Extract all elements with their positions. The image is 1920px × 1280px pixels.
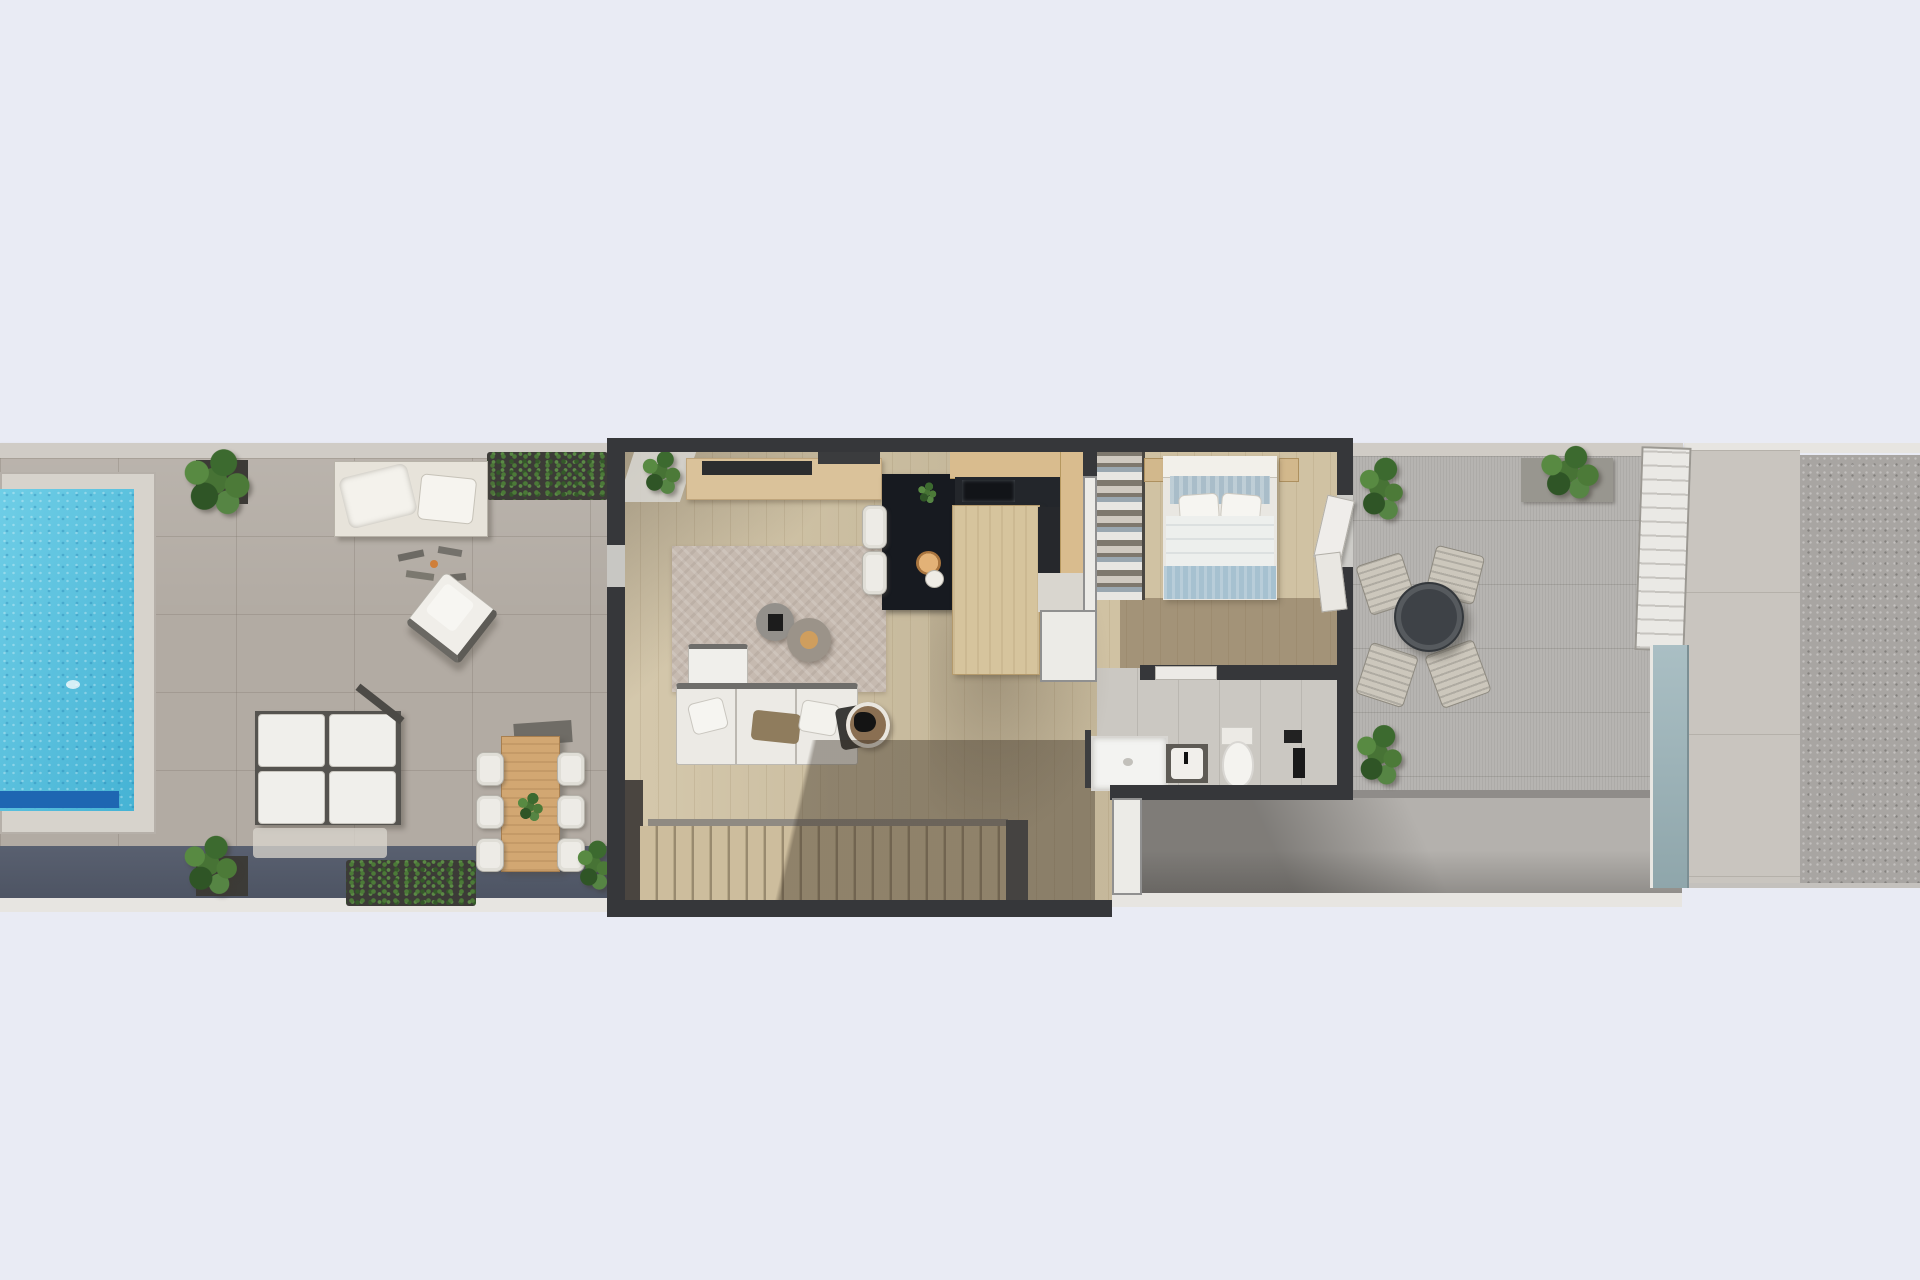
lounge-lower-pad — [253, 828, 387, 858]
potted-plant-top — [168, 446, 264, 522]
left-terrace-outer-trim — [0, 898, 625, 912]
gravel-band — [1800, 455, 1920, 883]
right-terrace-plant-topleft — [1352, 452, 1410, 530]
daybed-cushion — [417, 473, 478, 525]
partition-kitchen-bedroom — [1083, 476, 1097, 612]
glass-screen-pane — [1650, 645, 1689, 888]
pool-light — [66, 680, 80, 689]
rear-white-pillar — [1112, 798, 1142, 895]
pouf-tray-tan — [800, 631, 818, 649]
armchair-seat-cushion — [425, 582, 476, 633]
dining-chair — [557, 795, 585, 829]
potted-plant-bottom-left — [172, 832, 248, 902]
pool-bench-step — [0, 791, 119, 808]
dining-chair — [557, 752, 585, 786]
round-side-table — [846, 702, 890, 748]
small-bowl — [925, 570, 944, 588]
lounge-cushion — [258, 714, 325, 767]
lounge-cushion — [258, 771, 325, 824]
right-terrace-plant-bottom — [1348, 720, 1410, 794]
pouf-tray-dark — [768, 614, 783, 631]
bar-stool — [862, 551, 887, 595]
shower-drain — [1123, 758, 1133, 766]
bed-duvet — [1166, 516, 1274, 568]
lounge-cushion — [329, 771, 396, 824]
cooktop-appliance — [962, 480, 1015, 502]
table-centerpiece-plant — [512, 791, 548, 825]
partition-kitchen-bedroom-top — [1083, 438, 1097, 478]
kitchen-tall-unit — [1060, 452, 1084, 573]
media-slab — [818, 452, 880, 464]
hedge-planter-top — [487, 452, 608, 500]
tv-panel — [702, 461, 812, 475]
bath-accessory — [1284, 730, 1302, 743]
accessory-dot-orange — [430, 560, 438, 568]
left-wall-window — [607, 545, 625, 587]
towel-rail — [1293, 748, 1305, 778]
lounge-cushion — [329, 714, 396, 767]
dining-chair — [476, 838, 504, 872]
pouf-with-tray — [787, 618, 831, 662]
hall-bathroom-wall — [1040, 610, 1097, 682]
nightstand — [1279, 458, 1299, 482]
sofa-pillow — [798, 699, 841, 737]
nightstand — [1144, 458, 1164, 482]
house-wall-bottom-left — [607, 900, 1112, 917]
right-strip-bottom-edge — [1684, 883, 1920, 888]
double-bed — [1163, 456, 1277, 600]
round-bistro-table — [1394, 582, 1464, 652]
house-wall-right — [1337, 438, 1353, 800]
bathroom-door-leaf — [1155, 666, 1217, 680]
right-terrace-step-edge — [1353, 790, 1683, 798]
appliance-niche — [1038, 507, 1060, 573]
bar-stool — [862, 505, 887, 549]
vanity-counter — [1166, 744, 1208, 783]
accessory-bar — [398, 549, 425, 561]
bed-headboard — [1163, 456, 1277, 478]
dining-chair — [476, 795, 504, 829]
lounge-accessories — [398, 548, 470, 586]
open-wardrobe — [1097, 450, 1145, 600]
vanity-tap — [1184, 752, 1188, 764]
modular-lounge-set — [255, 711, 401, 825]
daybed — [334, 461, 488, 537]
indoor-plant — [634, 448, 688, 500]
right-terrace-top-wall — [1353, 443, 1683, 456]
table-decor-dark — [854, 712, 876, 732]
swimming-pool — [0, 489, 134, 811]
house-wall-bottom-right — [1110, 785, 1353, 800]
kitchen-peninsula — [952, 505, 1040, 675]
stair-stub-wall — [1006, 820, 1028, 903]
paved-walkway — [1684, 450, 1800, 888]
throw-blanket — [751, 710, 802, 745]
island-plant — [914, 481, 940, 506]
toilet-bowl — [1222, 741, 1254, 788]
rear-patio — [1110, 798, 1682, 893]
dining-chair — [476, 752, 504, 786]
house-wall-left — [607, 438, 625, 917]
accessory-bar — [438, 546, 463, 557]
shower-tray — [1091, 736, 1168, 791]
daybed-blanket — [338, 462, 419, 529]
right-terrace-plant-topright — [1526, 444, 1612, 504]
stair-treads — [640, 826, 1008, 902]
hedge-planter-bottom — [346, 860, 476, 906]
kitchen-light-patch — [1038, 573, 1083, 612]
glass-screen-frame — [1634, 446, 1691, 652]
floorplan-render — [0, 0, 1920, 1280]
accessory-bar — [406, 570, 435, 581]
rear-patio-trim — [1110, 893, 1682, 907]
house-wall-top — [607, 438, 1353, 452]
bed-foot-blanket — [1164, 566, 1276, 599]
